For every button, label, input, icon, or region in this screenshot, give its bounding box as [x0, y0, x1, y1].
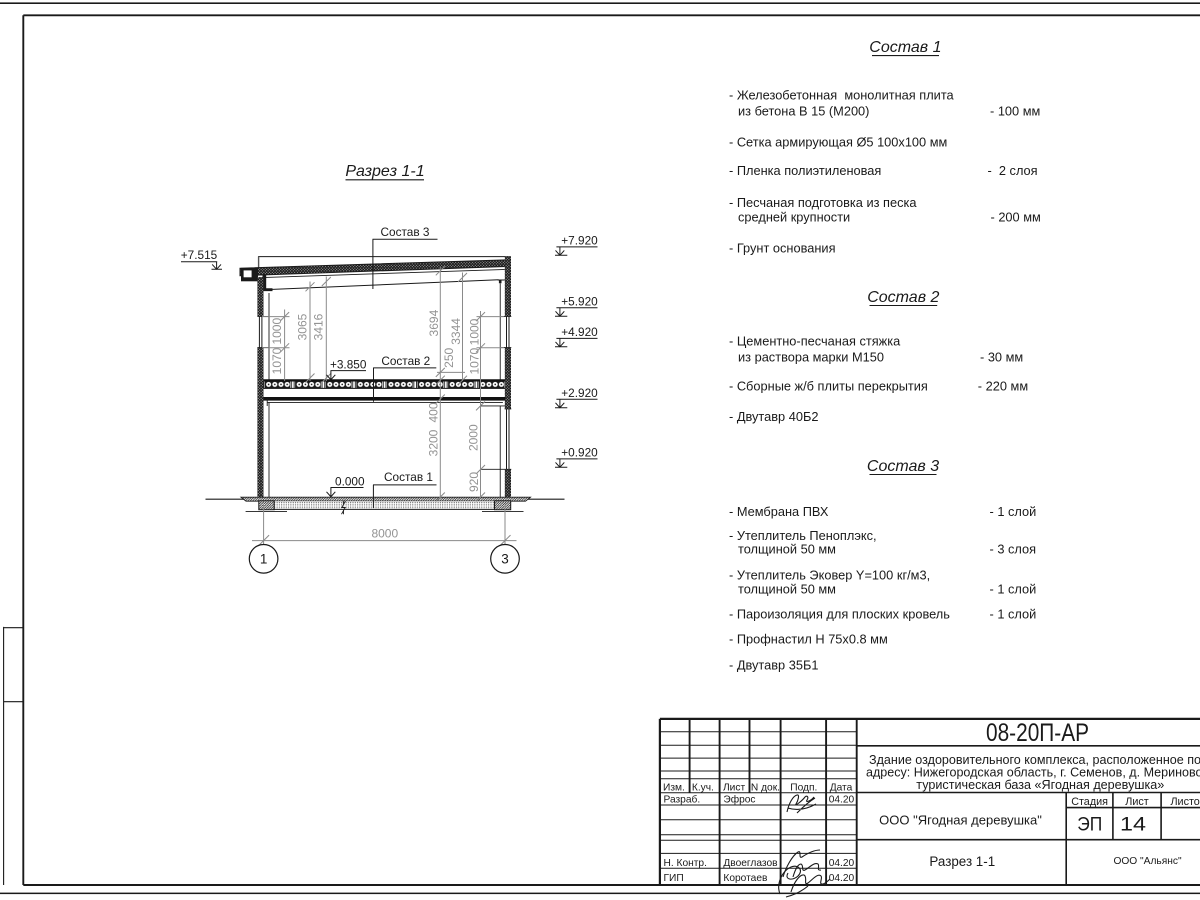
- svg-text:- Грунт основания: - Грунт основания: [729, 241, 836, 256]
- svg-text:0.000: 0.000: [335, 474, 365, 488]
- svg-text:Коротаев: Коротаев: [723, 873, 767, 884]
- svg-text:ООО "Альянс": ООО "Альянс": [1113, 856, 1182, 867]
- svg-text:- Сборные ж/б плиты перекрытия: - Сборные ж/б плиты перекрытия: [729, 379, 928, 394]
- svg-text:+4.920: +4.920: [561, 325, 598, 339]
- svg-text:Н. Контр.: Н. Контр.: [664, 858, 707, 869]
- svg-text:Разрез 1-1: Разрез 1-1: [345, 163, 424, 180]
- svg-text:08-20П-АР: 08-20П-АР: [986, 719, 1089, 747]
- svg-text:8000: 8000: [371, 527, 398, 541]
- svg-text:Разрез 1-1: Разрез 1-1: [929, 854, 995, 869]
- svg-text:1070: 1070: [270, 347, 284, 374]
- svg-text:1000: 1000: [468, 318, 482, 345]
- svg-text:14: 14: [1120, 814, 1146, 836]
- svg-text:- Пленка полиэтиленовая: - Пленка полиэтиленовая: [729, 163, 881, 178]
- svg-text:Состав 2: Состав 2: [381, 354, 430, 368]
- svg-text:- 200 мм: - 200 мм: [991, 210, 1041, 225]
- svg-text:- 2 слоя: - 2 слоя: [988, 163, 1038, 178]
- svg-text:3065: 3065: [295, 313, 309, 340]
- svg-text:- Профнастил Н 75х0.8 мм: - Профнастил Н 75х0.8 мм: [729, 632, 888, 647]
- svg-text:Состав 1: Состав 1: [869, 39, 941, 56]
- svg-text:- 1 слой: - 1 слой: [990, 504, 1037, 519]
- svg-text:К.уч.: К.уч.: [692, 782, 714, 793]
- svg-text:Состав 3: Состав 3: [381, 225, 430, 239]
- svg-text:Эфрос: Эфрос: [723, 794, 755, 806]
- svg-text:- 1 слой: - 1 слой: [990, 581, 1037, 596]
- svg-text:+0.920: +0.920: [561, 446, 598, 460]
- svg-text:Разраб.: Разраб.: [664, 794, 701, 806]
- svg-text:ЭП: ЭП: [1077, 814, 1102, 836]
- svg-text:N док.: N док.: [751, 782, 780, 793]
- svg-text:толщиной 50 мм: толщиной 50 мм: [738, 541, 836, 556]
- svg-text:ГИП: ГИП: [664, 873, 684, 884]
- svg-text:04.20: 04.20: [829, 858, 855, 869]
- svg-text:+7.515: +7.515: [181, 248, 218, 262]
- svg-text:Состав 2: Состав 2: [867, 289, 939, 306]
- svg-text:3344: 3344: [449, 318, 463, 345]
- svg-text:Стадия: Стадия: [1071, 796, 1108, 808]
- svg-text:3416: 3416: [312, 313, 326, 340]
- svg-text:толщиной 50 мм: толщиной 50 мм: [738, 581, 836, 596]
- svg-text:1: 1: [260, 552, 268, 567]
- svg-text:1070: 1070: [468, 348, 482, 375]
- svg-text:- Железобетонная монолитная п: - Железобетонная монолитная плита: [729, 88, 955, 103]
- svg-text:+3.850: +3.850: [330, 357, 367, 371]
- svg-text:Изм.: Изм.: [663, 782, 685, 793]
- svg-text:- 1 слой: - 1 слой: [990, 607, 1037, 622]
- svg-text:- 100 мм: - 100 мм: [990, 104, 1040, 119]
- svg-text:Состав 3: Состав 3: [867, 458, 939, 475]
- svg-text:Двоеглазов: Двоеглазов: [723, 858, 777, 869]
- svg-text:- Пароизоляция для плоских кро: - Пароизоляция для плоских кровель: [729, 607, 950, 622]
- svg-text:- Цементно-песчаная стяжка: - Цементно-песчаная стяжка: [729, 333, 901, 348]
- svg-text:- Двутавр 40Б2: - Двутавр 40Б2: [729, 409, 818, 424]
- svg-text:из бетона В 15 (М200): из бетона В 15 (М200): [738, 104, 869, 119]
- svg-text:04.20: 04.20: [829, 795, 855, 806]
- svg-text:- 3 слоя: - 3 слоя: [990, 541, 1037, 556]
- svg-text:- Песчаная подготовка из песка: - Песчаная подготовка из песка: [729, 195, 917, 210]
- svg-text:3200: 3200: [427, 429, 441, 456]
- svg-text:Листов: Листов: [1170, 796, 1200, 808]
- svg-text:3694: 3694: [427, 309, 441, 336]
- svg-text:из раствора марки М150: из раствора марки М150: [738, 350, 884, 365]
- svg-text:Состав 1: Состав 1: [384, 470, 433, 484]
- svg-text:- 220 мм: - 220 мм: [978, 379, 1028, 394]
- svg-text:250: 250: [442, 347, 456, 367]
- svg-text:Лист: Лист: [723, 782, 745, 793]
- svg-text:Подп.: Подп.: [790, 782, 817, 793]
- svg-text:+2.920: +2.920: [561, 386, 598, 400]
- svg-text:- Сетка армирующая Ø5 100х100: - Сетка армирующая Ø5 100х100 мм: [729, 135, 947, 150]
- svg-text:04.20: 04.20: [829, 873, 855, 884]
- svg-text:+5.920: +5.920: [561, 295, 598, 309]
- svg-text:ООО "Ягодная деревушка": ООО "Ягодная деревушка": [879, 813, 1042, 828]
- svg-text:1000: 1000: [270, 318, 284, 345]
- svg-text:- 30 мм: - 30 мм: [980, 350, 1023, 365]
- svg-text:- Мембрана ПВХ: - Мембрана ПВХ: [729, 504, 829, 519]
- svg-text:2000: 2000: [466, 424, 480, 451]
- svg-text:3: 3: [501, 552, 509, 567]
- svg-text:400: 400: [427, 402, 441, 422]
- svg-text:Дата: Дата: [830, 782, 853, 793]
- svg-text:+7.920: +7.920: [561, 234, 598, 248]
- svg-text:туристическая база «Ягодная де: туристическая база «Ягодная деревушка»: [916, 777, 1164, 792]
- svg-text:- Двутавр 35Б1: - Двутавр 35Б1: [729, 657, 818, 672]
- svg-text:средней крупности: средней крупности: [738, 210, 850, 225]
- svg-text:Лист: Лист: [1125, 796, 1149, 808]
- svg-text:920: 920: [467, 472, 481, 492]
